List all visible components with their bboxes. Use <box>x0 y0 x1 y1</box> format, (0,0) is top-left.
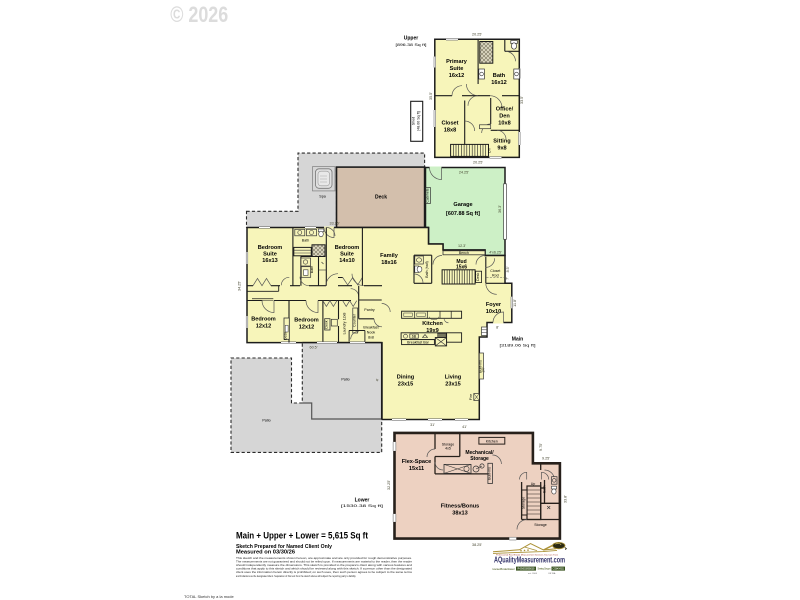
svg-text:Serving Oregon: Serving Oregon <box>538 568 552 571</box>
svg-text:7': 7' <box>506 277 510 280</box>
svg-text:Den: Den <box>499 114 510 120</box>
svg-text:Spa: Spa <box>319 195 325 199</box>
svg-text:Bedroom: Bedroom <box>335 245 360 251</box>
svg-text:© 2026: © 2026 <box>170 2 228 27</box>
svg-text:Flex-Space: Flex-Space <box>402 459 432 465</box>
svg-text:18x16: 18x16 <box>381 260 397 266</box>
svg-text:AQualityMeasurement.com: AQualityMeasurement.com <box>494 554 565 564</box>
svg-text:Suite: Suite <box>263 252 277 258</box>
svg-text:Patio: Patio <box>262 419 270 423</box>
svg-text:10x8: 10x8 <box>498 121 510 127</box>
svg-text:Desk: Desk <box>284 332 288 340</box>
svg-text:Bedroom: Bedroom <box>294 318 319 324</box>
svg-text:Main: Main <box>512 337 523 343</box>
svg-text:Fire: Fire <box>469 394 473 400</box>
svg-text:12x12: 12x12 <box>256 324 272 330</box>
svg-text:Counter: Counter <box>352 313 356 327</box>
svg-text:38.25': 38.25' <box>472 543 482 547</box>
svg-text:34.25': 34.25' <box>238 281 242 291</box>
svg-text:Bath: Bath <box>310 266 314 273</box>
svg-text:Family: Family <box>380 253 399 259</box>
svg-text:9.25': 9.25' <box>542 456 550 460</box>
svg-text:Kitchen: Kitchen <box>422 321 443 327</box>
svg-text:OR WA: OR WA <box>548 572 556 575</box>
svg-text:33.8': 33.8' <box>563 495 567 503</box>
svg-text:41': 41' <box>462 425 467 429</box>
svg-text:Measured on 03/30/26: Measured on 03/30/26 <box>236 549 295 555</box>
svg-text:38x13: 38x13 <box>452 511 468 517</box>
svg-text:[48.00 Sq ft]: [48.00 Sq ft] <box>417 111 421 130</box>
svg-text:6B: 6B <box>412 335 417 339</box>
svg-text:Shed: Shed <box>412 117 416 125</box>
svg-text:CCB# 54321: CCB# 54321 <box>553 568 565 571</box>
svg-text:[3189.06 Sq ft]: [3189.06 Sq ft] <box>500 344 536 348</box>
svg-text:Kitchen: Kitchen <box>486 440 498 444</box>
svg-text:Primary: Primary <box>446 59 468 65</box>
svg-text:24.25': 24.25' <box>459 171 469 175</box>
svg-text:Deck: Deck <box>375 194 387 200</box>
svg-text:Desk: Desk <box>324 320 328 328</box>
svg-text:est. 2004: est. 2004 <box>528 572 538 575</box>
svg-text:Storage: Storage <box>470 456 489 462</box>
svg-text:Pantry: Pantry <box>364 308 375 312</box>
svg-text:60.5': 60.5' <box>310 346 318 350</box>
svg-text:Office/: Office/ <box>496 107 514 113</box>
svg-text:Bedroom: Bedroom <box>258 245 283 251</box>
svg-text:Bedroom: Bedroom <box>251 317 276 323</box>
svg-text:PHONE 503-555-0100: PHONE 503-555-0100 <box>518 568 536 571</box>
svg-text:Bath: Bath <box>302 239 309 243</box>
svg-text:Dining: Dining <box>397 375 415 381</box>
svg-text:Desk: Desk <box>476 273 480 281</box>
svg-text:8x8: 8x8 <box>368 336 374 340</box>
svg-text:14x10: 14x10 <box>339 258 355 264</box>
svg-text:Fitness/Bonus: Fitness/Bonus <box>441 504 480 510</box>
svg-text:35.5': 35.5' <box>429 92 433 100</box>
svg-text:Breakfast Bar: Breakfast Bar <box>407 340 430 344</box>
svg-text:9x8: 9x8 <box>497 146 506 152</box>
svg-text:[607.88 Sq ft]: [607.88 Sq ft] <box>446 211 480 217</box>
svg-text:32.25': 32.25' <box>387 480 391 490</box>
svg-text:Suite: Suite <box>450 66 464 72</box>
svg-text:20.25': 20.25' <box>472 33 482 37</box>
svg-text:23x15: 23x15 <box>398 382 414 388</box>
svg-text:16x12: 16x12 <box>491 80 507 86</box>
svg-text:Bath (half): Bath (half) <box>425 261 429 278</box>
svg-text:16x13: 16x13 <box>262 258 278 264</box>
svg-text:Living: Living <box>445 375 462 381</box>
svg-text:4'x6.25': 4'x6.25' <box>489 251 502 255</box>
svg-text:Closet: Closet <box>441 121 458 127</box>
svg-text:15x11: 15x11 <box>409 466 424 472</box>
svg-text:9.75': 9.75' <box>539 443 543 451</box>
svg-text:and limitations as the designa: and limitations as the designated client… <box>236 574 356 578</box>
svg-text:Dn: Dn <box>488 148 492 153</box>
svg-text:8.5': 8.5' <box>506 266 510 272</box>
svg-text:8': 8' <box>496 325 499 329</box>
svg-text:20.25': 20.25' <box>473 161 483 165</box>
svg-text:Foyer: Foyer <box>486 302 502 308</box>
svg-text:11.8': 11.8' <box>513 299 517 307</box>
svg-text:Up: Up <box>531 482 536 486</box>
svg-text:Built-ins: Built-ins <box>487 467 491 480</box>
svg-text:Bath: Bath <box>493 73 506 79</box>
svg-text:4x5: 4x5 <box>445 447 451 451</box>
svg-text:[1530.38 Sq ft]: [1530.38 Sq ft] <box>341 504 383 508</box>
svg-text:10x10: 10x10 <box>486 309 502 315</box>
svg-text:TOTAL Sketch by a la mode: TOTAL Sketch by a la mode <box>184 594 235 599</box>
svg-text:Garage: Garage <box>453 202 472 208</box>
svg-text:18x8: 18x8 <box>444 128 456 134</box>
svg-text:12x12: 12x12 <box>299 325 315 331</box>
svg-text:[896.38 Sq ft]: [896.38 Sq ft] <box>396 43 427 47</box>
svg-text:33.5': 33.5' <box>520 96 524 104</box>
svg-text:33.25': 33.25' <box>330 222 340 226</box>
svg-text:Licensed Bonded Insured: Licensed Bonded Insured <box>493 568 516 571</box>
svg-text:Storage: Storage <box>534 523 547 527</box>
svg-text:16x12: 16x12 <box>449 73 465 79</box>
svg-text:Lower: Lower <box>355 498 370 504</box>
svg-text:Closet: Closet <box>490 269 500 273</box>
svg-text:23x15: 23x15 <box>445 382 461 388</box>
svg-text:31': 31' <box>430 423 435 427</box>
svg-text:Breakfast: Breakfast <box>363 326 378 330</box>
svg-text:Nook: Nook <box>367 331 376 335</box>
svg-text:24': 24' <box>482 367 486 372</box>
svg-text:Laundry 12x8: Laundry 12x8 <box>343 313 347 335</box>
svg-text:4': 4' <box>376 378 380 381</box>
svg-text:Patio: Patio <box>341 378 349 382</box>
svg-text:Upper: Upper <box>404 36 419 42</box>
svg-text:12.3': 12.3' <box>458 244 466 248</box>
svg-text:36.3': 36.3' <box>498 205 502 213</box>
svg-text:Bench: Bench <box>459 251 469 255</box>
svg-text:Bath: Bath <box>543 485 547 492</box>
svg-text:Sitting: Sitting <box>493 139 511 145</box>
svg-text:Suite: Suite <box>340 252 354 258</box>
svg-text:Main + Upper + Lower = 5,615 S: Main + Upper + Lower = 5,615 Sq ft <box>236 531 368 541</box>
svg-text:Cabinets: Cabinets <box>425 188 429 202</box>
svg-text:Rod: Rod <box>492 274 499 278</box>
